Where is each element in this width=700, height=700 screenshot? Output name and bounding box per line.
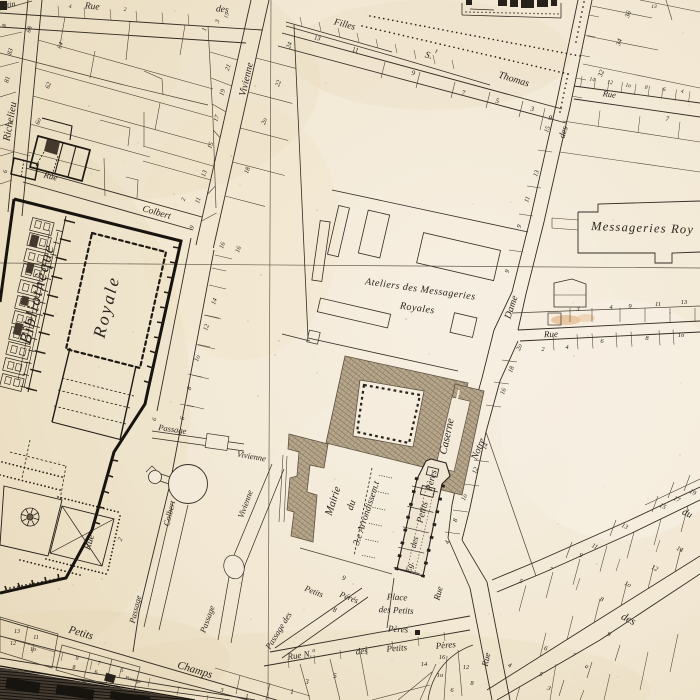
svg-text:Rue: Rue [543, 329, 558, 340]
svg-text:des Petits: des Petits [379, 604, 415, 616]
svg-text:5: 5 [121, 668, 124, 674]
svg-text:6: 6 [95, 670, 98, 676]
svg-text:9: 9 [76, 656, 79, 662]
svg-text:13: 13 [14, 629, 20, 635]
svg-text:1: 1 [245, 693, 248, 700]
svg-text:1o: 1o [625, 83, 632, 90]
svg-text:Place: Place [386, 591, 408, 602]
svg-text:Pères: Pères [387, 623, 409, 634]
svg-text:11: 11 [351, 46, 359, 55]
svg-text:14: 14 [421, 661, 428, 668]
svg-text:12: 12 [10, 641, 16, 647]
svg-text:13: 13 [651, 4, 657, 10]
svg-text:Rue: Rue [83, 1, 100, 12]
svg-text:Rue: Rue [601, 88, 617, 100]
svg-text:12: 12 [607, 80, 614, 87]
svg-text:1: 1 [290, 688, 294, 696]
svg-text:8: 8 [73, 665, 76, 671]
svg-text:11: 11 [33, 635, 39, 641]
svg-text:11: 11 [655, 301, 661, 308]
svg-text:1o: 1o [437, 672, 444, 679]
svg-text:des: des [215, 4, 229, 16]
svg-text:13: 13 [681, 299, 688, 306]
svg-text:Pères: Pères [434, 639, 456, 651]
svg-text:16: 16 [439, 654, 446, 661]
svg-text:Petits: Petits [385, 642, 408, 654]
svg-text:3: 3 [304, 678, 309, 686]
svg-text:5: 5 [333, 672, 337, 680]
svg-text:1o: 1o [678, 332, 685, 339]
svg-text:12: 12 [463, 664, 470, 671]
